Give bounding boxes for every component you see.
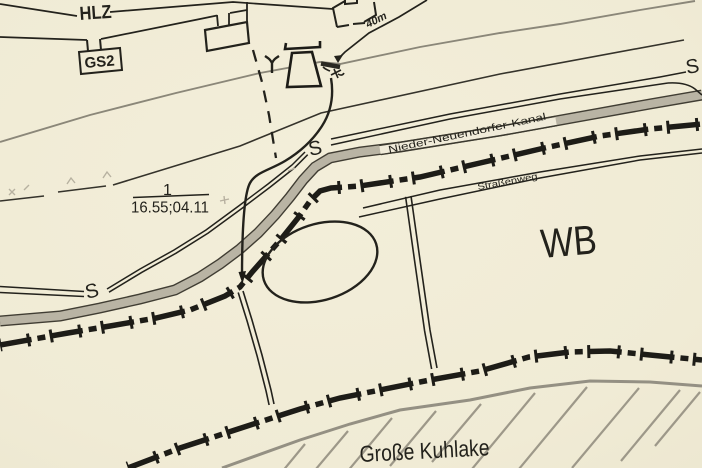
svg-text:WB: WB [539,216,599,267]
svg-text:GS2: GS2 [84,52,115,72]
svg-text:16.55;04.11: 16.55;04.11 [131,200,209,217]
svg-text:HLZ: HLZ [79,2,113,25]
